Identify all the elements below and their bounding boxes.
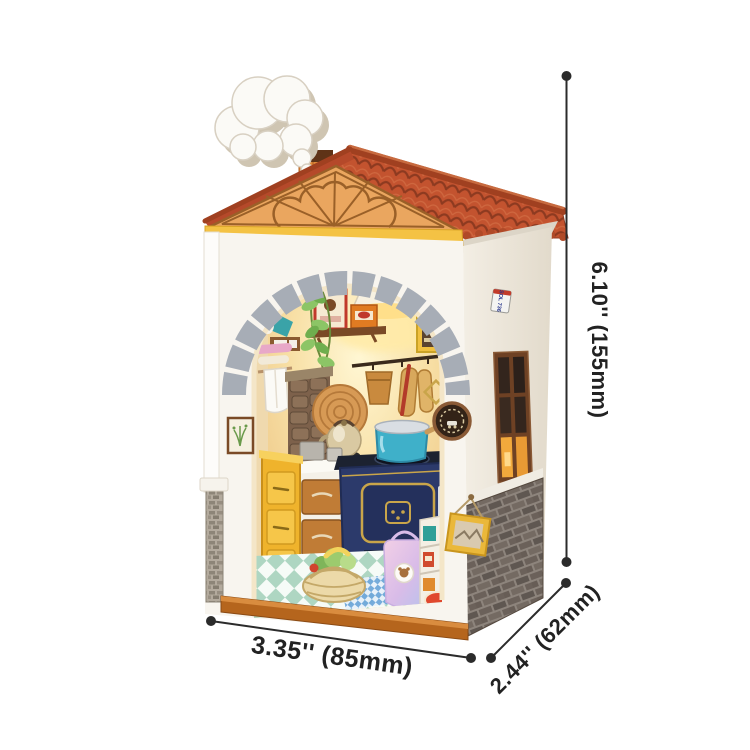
counter-drawer-top <box>302 480 342 514</box>
apple <box>310 564 319 573</box>
steel-pot <box>300 442 324 460</box>
dollhouse-illustration: SOL 736 <box>0 0 750 750</box>
dimension-height: 6.10'' (155mm) <box>562 71 613 567</box>
license-plate: SOL 736 <box>491 289 512 313</box>
side-window <box>494 351 533 482</box>
orange-jar <box>423 578 435 591</box>
width-dot-right <box>466 653 476 663</box>
width-dot-left <box>206 616 216 626</box>
window-light-glow <box>504 452 510 466</box>
corner-bracket <box>200 478 228 491</box>
height-dot-top <box>562 71 572 81</box>
front-corner-stone-strip <box>206 490 223 602</box>
house-front <box>200 232 470 640</box>
kitchen-plaque <box>434 403 470 439</box>
height-dimension-label: 6.10'' (155mm) <box>587 262 612 419</box>
height-dot-bottom <box>562 557 572 567</box>
depth-dot-bottom <box>486 653 496 663</box>
teal-pot-rim <box>375 421 429 434</box>
teal-tin <box>423 526 436 541</box>
copper-pot <box>366 372 392 404</box>
smoke-cloud-front-layer <box>215 76 323 176</box>
botanical-frame <box>228 418 253 453</box>
front-left-pilaster <box>204 232 219 492</box>
depth-dot-top <box>561 578 571 588</box>
house-side-wall: SOL 736 <box>463 227 552 636</box>
product-photo-miniature-dollhouse: SOL 736 <box>0 0 750 750</box>
